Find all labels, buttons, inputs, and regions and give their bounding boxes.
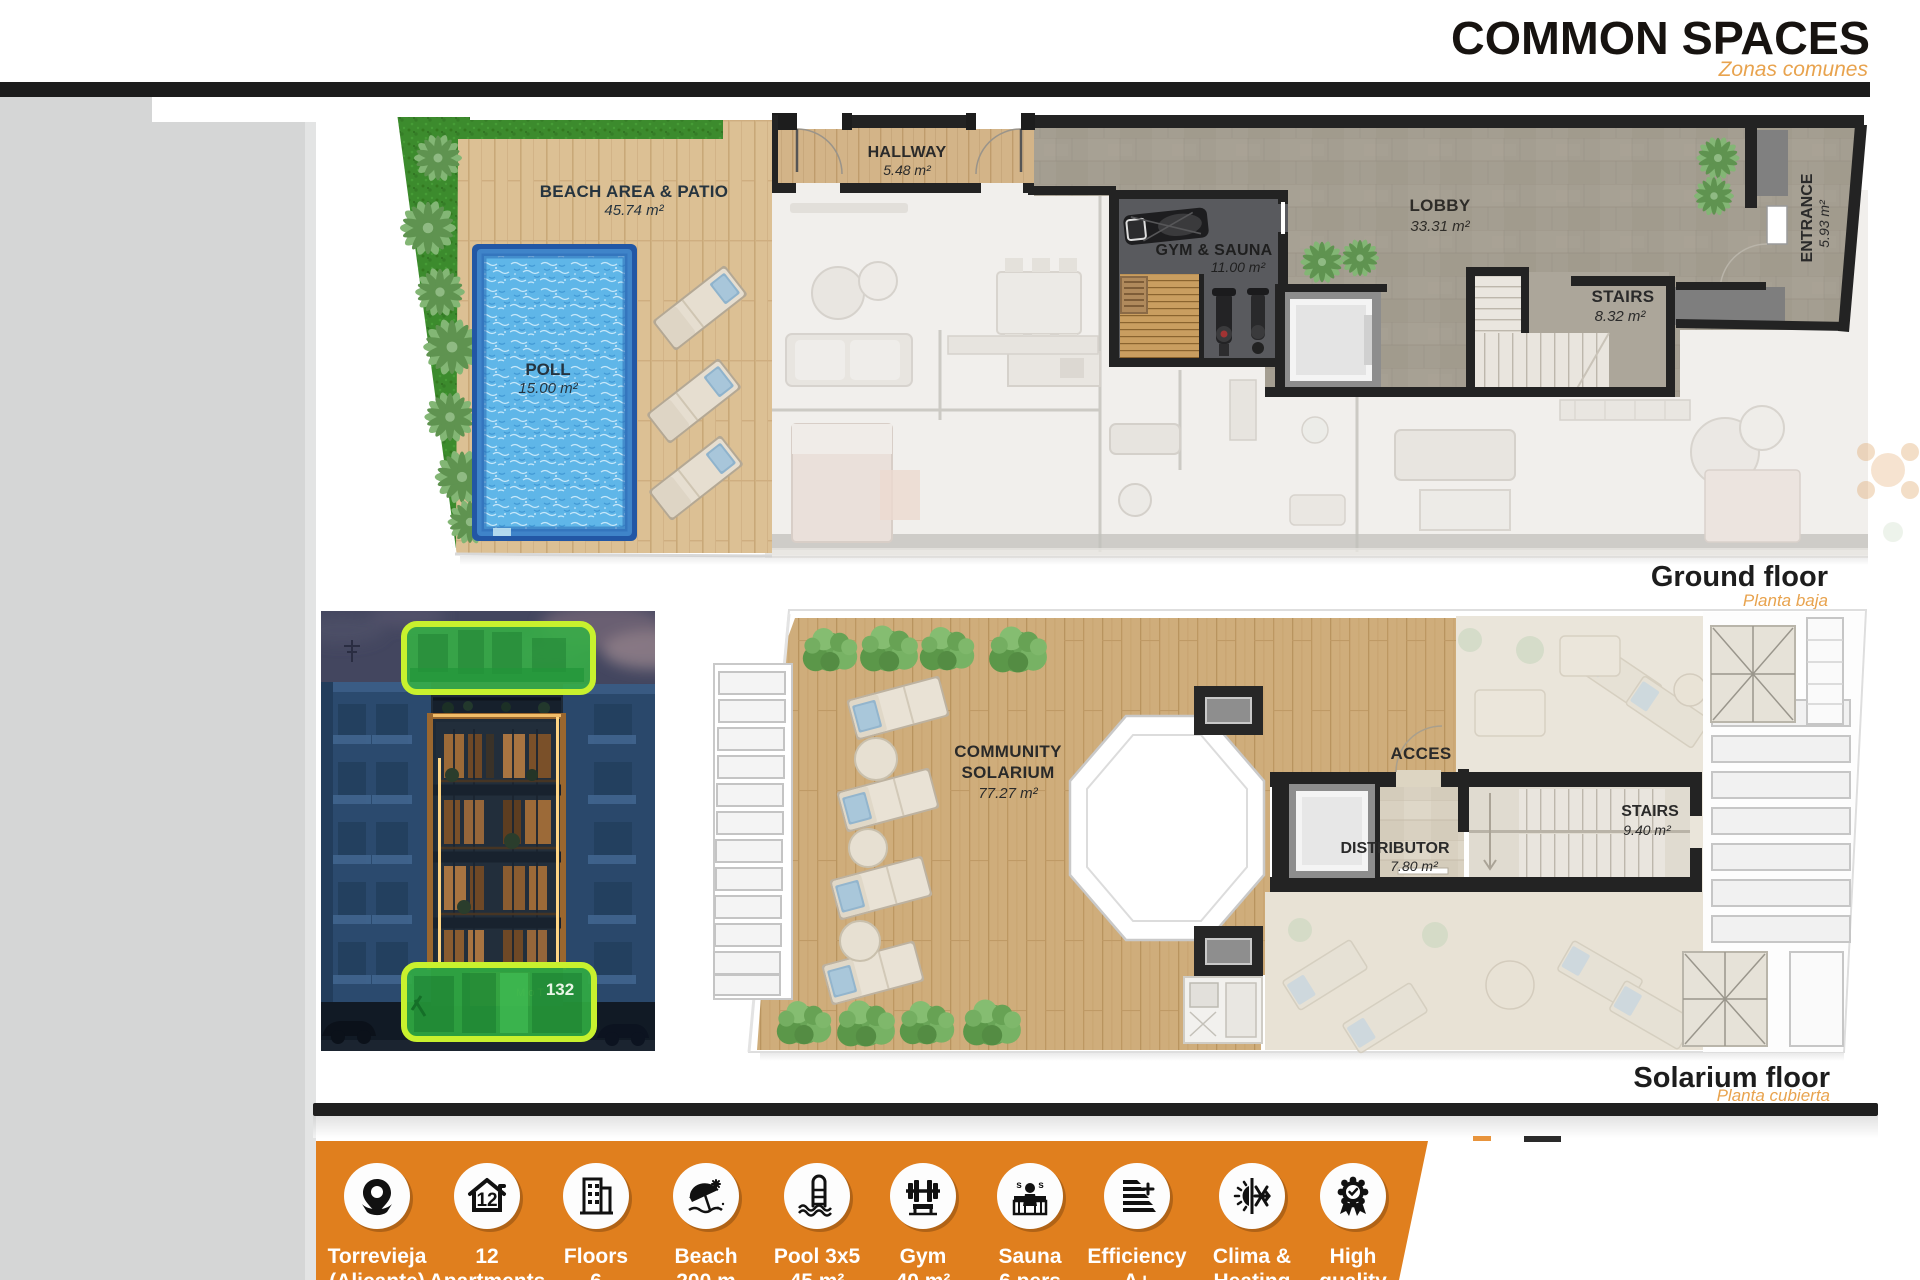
svg-text:Beach: Beach [674, 1245, 737, 1268]
svg-text:33.31 m²: 33.31 m² [1410, 218, 1470, 235]
svg-text:s: s [1038, 1180, 1044, 1191]
svg-text:SOLARIUM: SOLARIUM [961, 763, 1054, 782]
svg-text:ENTRANCE: ENTRANCE [1799, 173, 1816, 262]
svg-text:45.74 m²: 45.74 m² [604, 202, 664, 219]
svg-text:5.48 m²: 5.48 m² [883, 162, 932, 178]
svg-text:Planta cubierta: Planta cubierta [1717, 1086, 1830, 1105]
svg-text:DISTRIBUTOR: DISTRIBUTOR [1340, 840, 1449, 857]
svg-text:HALLWAY: HALLWAY [868, 144, 947, 161]
svg-text:LOBBY: LOBBY [1410, 196, 1471, 215]
svg-text:6: 6 [590, 1270, 602, 1280]
svg-text:5.93 m²: 5.93 m² [1816, 199, 1832, 248]
svg-text:40 m²: 40 m² [896, 1270, 951, 1280]
svg-text:77.27 m²: 77.27 m² [978, 785, 1038, 802]
svg-text:Clima &: Clima & [1213, 1245, 1291, 1268]
svg-text:STAIRS: STAIRS [1621, 803, 1679, 820]
svg-text:Heating: Heating [1213, 1270, 1290, 1280]
svg-text:STAIRS: STAIRS [1592, 287, 1655, 306]
svg-text:Torrevieja: Torrevieja [328, 1245, 427, 1268]
svg-text:ACCES: ACCES [1390, 744, 1451, 763]
svg-text:GYM & SAUNA: GYM & SAUNA [1155, 242, 1272, 259]
svg-text:Floors: Floors [564, 1245, 628, 1268]
svg-text:11.00 m²: 11.00 m² [1211, 259, 1267, 275]
svg-text:7.80 m²: 7.80 m² [1390, 858, 1439, 874]
svg-text:200 m: 200 m [676, 1270, 736, 1280]
svg-text:Planta baja: Planta baja [1743, 591, 1828, 610]
svg-text:quality: quality [1319, 1270, 1387, 1280]
svg-text:COMMUNITY: COMMUNITY [954, 742, 1062, 761]
svg-text:Zonas comunes: Zonas comunes [1718, 58, 1869, 81]
svg-text:12: 12 [476, 1190, 497, 1211]
svg-text:Pool 3x5: Pool 3x5 [774, 1245, 861, 1268]
svg-text:Efficiency: Efficiency [1087, 1245, 1187, 1268]
svg-text:6 pers: 6 pers [999, 1270, 1061, 1280]
svg-text:s: s [1016, 1180, 1022, 1191]
svg-text:BEACH AREA & PATIO: BEACH AREA & PATIO [540, 182, 729, 201]
svg-text:45 m²: 45 m² [790, 1270, 845, 1280]
svg-text:132: 132 [546, 980, 574, 999]
svg-text:8.32 m²: 8.32 m² [1595, 308, 1647, 325]
svg-text:Apartments: Apartments [429, 1270, 546, 1280]
svg-text:(Alicante): (Alicante) [329, 1270, 425, 1280]
svg-text:Ground floor: Ground floor [1651, 561, 1828, 593]
svg-text:Gym: Gym [900, 1245, 947, 1268]
svg-text:A+: A+ [1123, 1270, 1150, 1280]
svg-text:COMMON SPACES: COMMON SPACES [1451, 12, 1870, 64]
svg-text:High: High [1330, 1245, 1377, 1268]
svg-text:POLL: POLL [525, 360, 570, 379]
svg-text:9.40 m²: 9.40 m² [1623, 822, 1672, 838]
svg-text:12: 12 [475, 1245, 498, 1268]
svg-text:Sauna: Sauna [998, 1245, 1061, 1268]
svg-text:15.00 m²: 15.00 m² [518, 380, 578, 397]
